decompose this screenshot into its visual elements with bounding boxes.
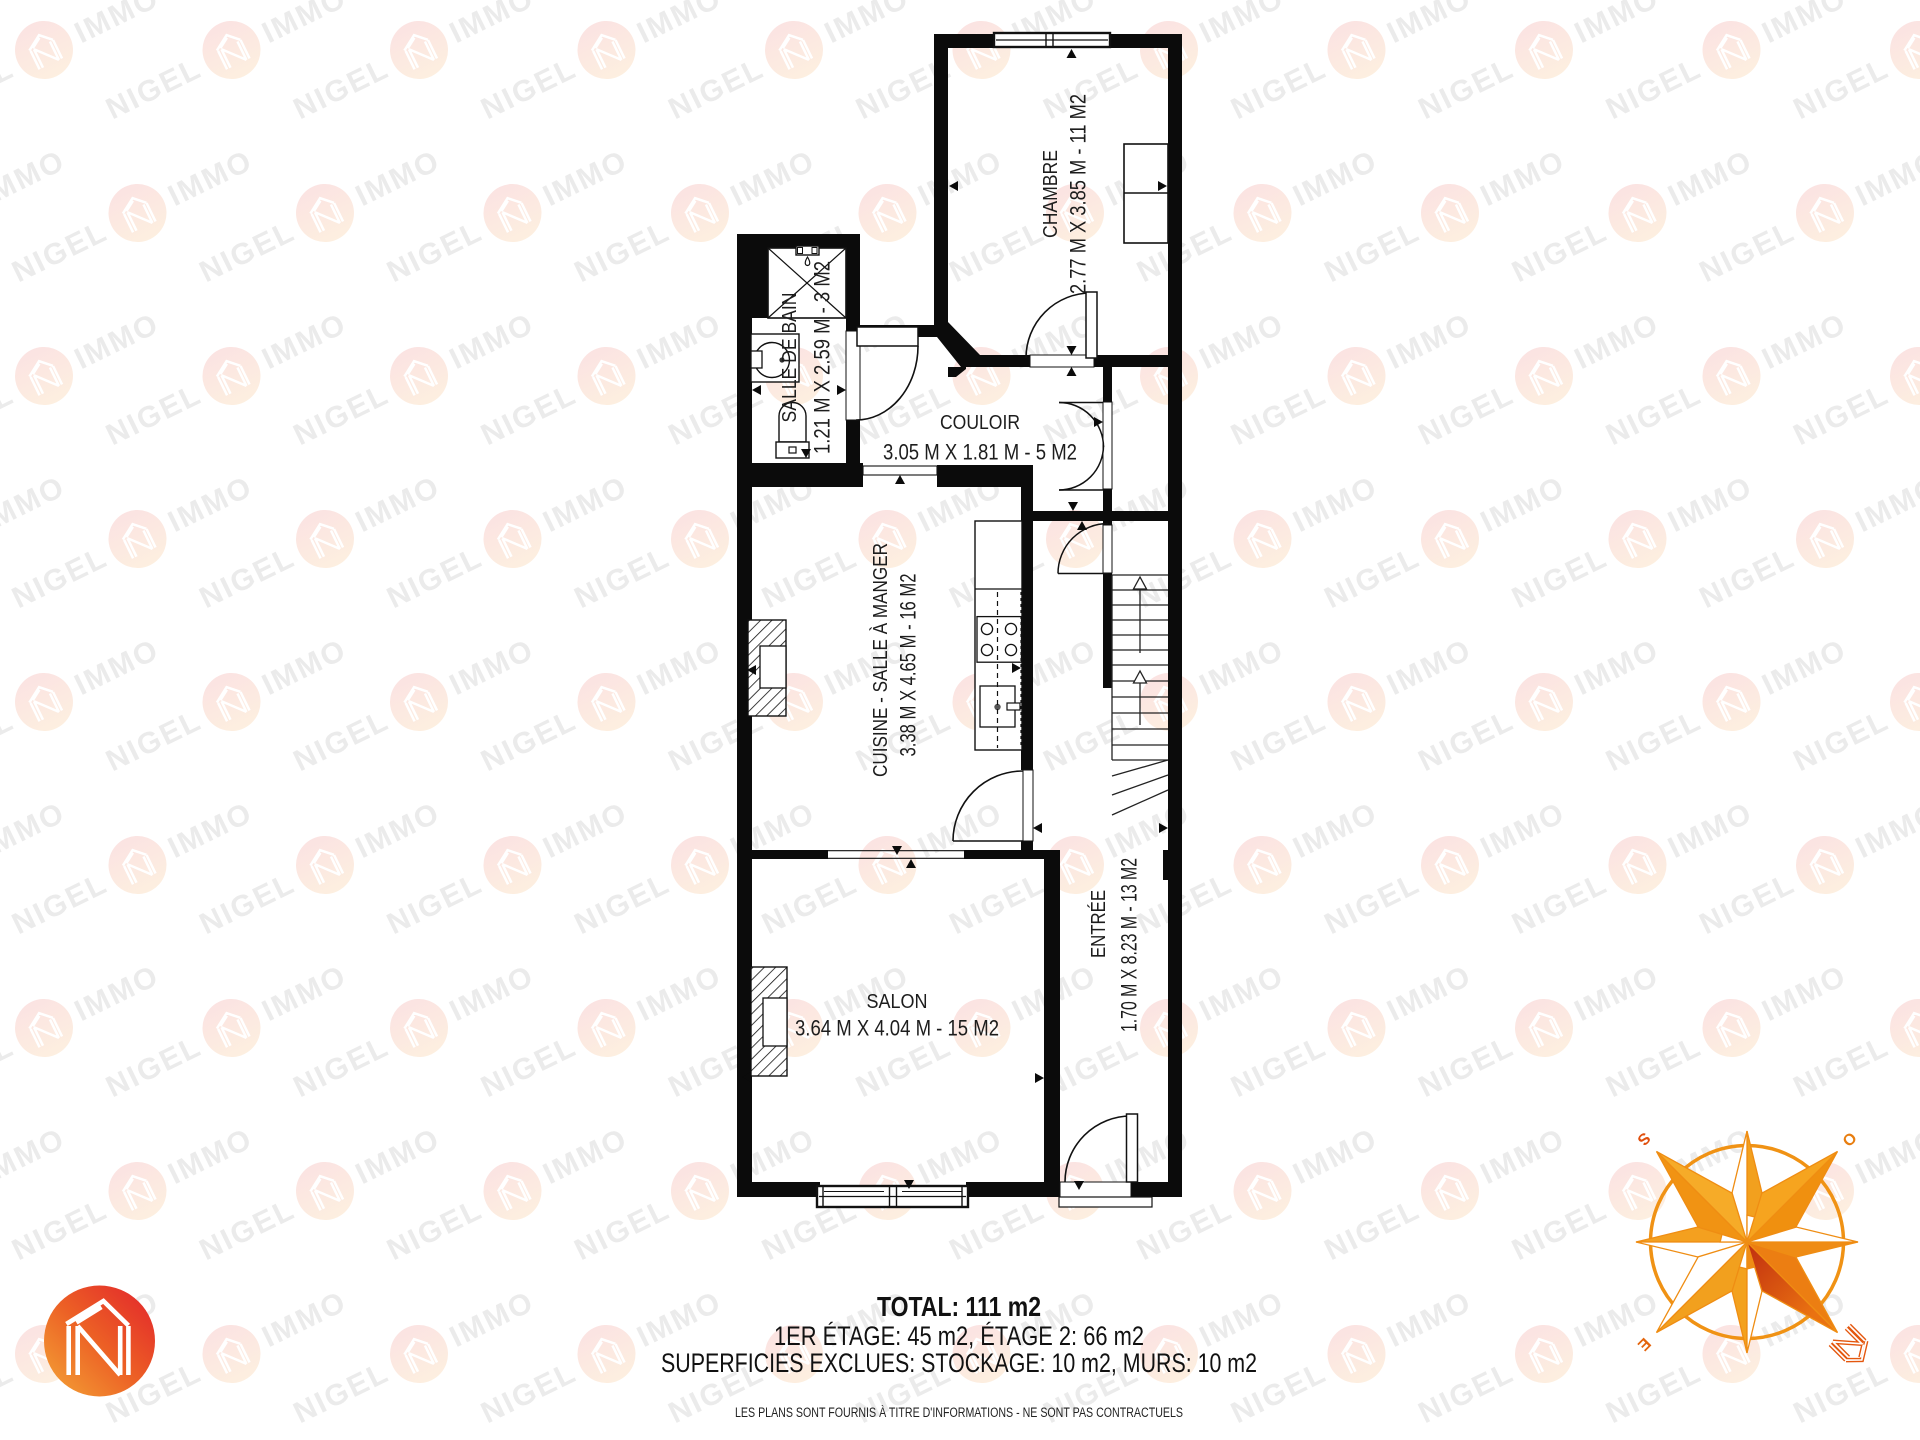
svg-text:COULOIR: COULOIR	[940, 412, 1020, 434]
svg-text:2.77 M X 3.85 M - 11 M2: 2.77 M X 3.85 M - 11 M2	[1066, 94, 1091, 294]
svg-text:3.64 M X 4.04 M - 15 M2: 3.64 M X 4.04 M - 15 M2	[795, 1016, 999, 1041]
svg-text:SALLE DE BAIN: SALLE DE BAIN	[779, 293, 801, 423]
svg-text:SALON: SALON	[867, 991, 928, 1013]
svg-text:CHAMBRE: CHAMBRE	[1040, 150, 1062, 238]
svg-text:ENTRÉE: ENTRÉE	[1087, 890, 1110, 958]
svg-text:1.70 M X 8.23 M - 13 M2: 1.70 M X 8.23 M - 13 M2	[1117, 858, 1142, 1032]
svg-text:SUPERFICIES EXCLUES: STOCKAGE:: SUPERFICIES EXCLUES: STOCKAGE: 10 m2, MU…	[661, 1348, 1257, 1378]
svg-text:3.38 M X 4.65 M - 16 M2: 3.38 M X 4.65 M - 16 M2	[896, 574, 921, 757]
svg-text:1.21 M X 2.59 M - 3 M2: 1.21 M X 2.59 M - 3 M2	[810, 261, 835, 454]
svg-text:1ER ÉTAGE: 45 m2, ÉTAGE 2: 66: 1ER ÉTAGE: 45 m2, ÉTAGE 2: 66 m2	[774, 1321, 1144, 1351]
svg-text:CUISINE - SALLE À MANGER: CUISINE - SALLE À MANGER	[869, 543, 892, 777]
svg-text:3.05 M X 1.81 M - 5 M2: 3.05 M X 1.81 M - 5 M2	[883, 440, 1077, 465]
svg-text:TOTAL: 111 m2: TOTAL: 111 m2	[877, 1291, 1041, 1322]
svg-text:LES PLANS SONT FOURNIS À TITRE: LES PLANS SONT FOURNIS À TITRE D'INFORMA…	[735, 1405, 1183, 1420]
